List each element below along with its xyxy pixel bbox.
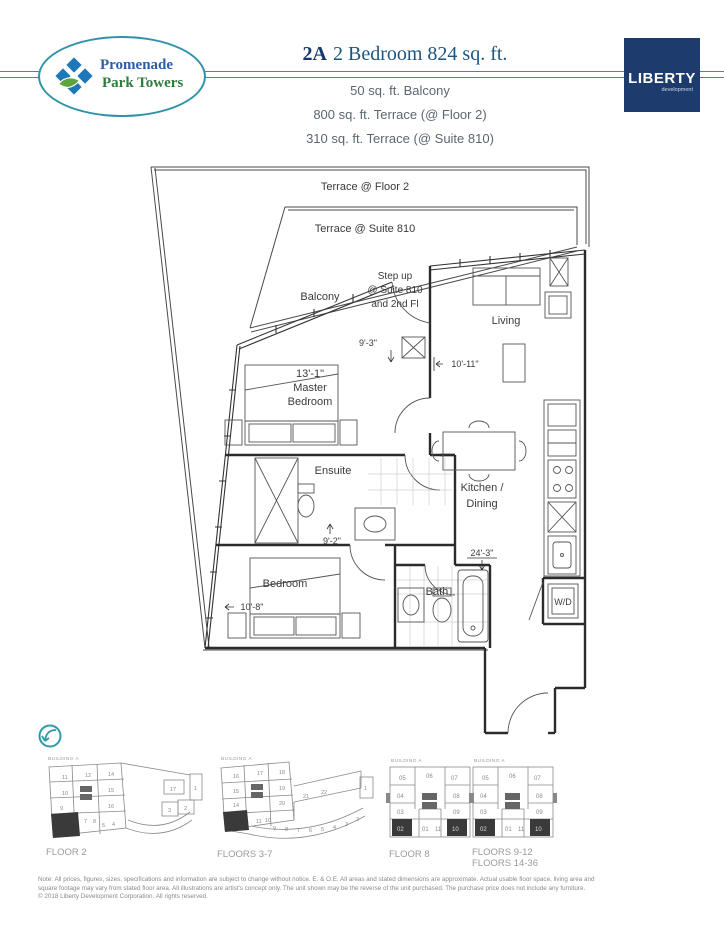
keyplan-floor2-core bbox=[80, 786, 92, 792]
svg-text:19: 19 bbox=[279, 786, 285, 792]
svg-text:04: 04 bbox=[480, 794, 487, 800]
svg-text:11: 11 bbox=[518, 827, 525, 833]
svg-text:10: 10 bbox=[62, 791, 68, 797]
label-step-up-3: and 2nd Fl bbox=[371, 299, 418, 310]
dim-9-2: 9'-2" bbox=[323, 536, 341, 546]
keyplan-floors912-balcony-left bbox=[469, 793, 473, 803]
svg-text:17: 17 bbox=[170, 787, 176, 793]
svg-text:01: 01 bbox=[505, 827, 512, 833]
label-bedroom: Bedroom bbox=[263, 578, 308, 590]
svg-text:10: 10 bbox=[452, 827, 459, 833]
living-furniture bbox=[473, 268, 571, 382]
label-wd: W/D bbox=[554, 597, 572, 607]
disclaimer-line-2: square footage may vary from stated floo… bbox=[38, 885, 693, 894]
disclaimer-line-3: © 2018 Liberty Development Corporation. … bbox=[38, 893, 693, 902]
svg-text:04: 04 bbox=[397, 794, 404, 800]
svg-text:05: 05 bbox=[482, 776, 489, 782]
logo-text-promenade: Promenade bbox=[100, 57, 173, 74]
keyplan-floor2-core2 bbox=[80, 794, 92, 800]
svg-text:7: 7 bbox=[297, 828, 300, 834]
svg-text:1: 1 bbox=[194, 786, 197, 792]
terrace-outlines bbox=[151, 167, 589, 650]
svg-text:8: 8 bbox=[285, 827, 288, 833]
label-step-up-2: @ Suite 810 bbox=[367, 285, 423, 296]
svg-text:4: 4 bbox=[112, 822, 115, 828]
label-living: Living bbox=[492, 315, 521, 327]
label-kitchen-2: Dining bbox=[466, 498, 497, 510]
keyplan-floors-3-7: BUILDING A 16 17 18 15 19 14 20 11 10 9 … bbox=[213, 750, 381, 864]
svg-text:02: 02 bbox=[397, 827, 404, 833]
keyplan-floors37-building: BUILDING A bbox=[221, 756, 252, 762]
svg-text:3: 3 bbox=[168, 808, 171, 814]
subtitle-terrace-fl2: 800 sq. ft. Terrace (@ Floor 2) bbox=[200, 107, 600, 122]
north-compass-icon bbox=[36, 722, 64, 750]
dim-10-8: 10'-8" bbox=[241, 602, 264, 612]
svg-text:1: 1 bbox=[364, 786, 367, 792]
svg-text:07: 07 bbox=[451, 776, 458, 782]
svg-text:11: 11 bbox=[256, 819, 262, 825]
label-bath: Bath bbox=[426, 586, 449, 598]
svg-text:5: 5 bbox=[102, 823, 105, 829]
door-swings bbox=[350, 282, 548, 733]
svg-text:08: 08 bbox=[453, 794, 460, 800]
unit-code: 2A bbox=[303, 43, 327, 65]
keyplan-floors37-label: FLOORS 3-7 bbox=[217, 849, 272, 860]
unit-walls bbox=[205, 250, 585, 733]
keyplan-floor-2: BUILDING A 11 12 14 10 15 9 16 7 8 5 4 1… bbox=[42, 750, 214, 862]
svg-text:2: 2 bbox=[356, 817, 359, 823]
ensuite-fixtures bbox=[255, 458, 452, 543]
page-title: 2A2 Bedroom 824 sq. ft. bbox=[220, 43, 590, 66]
subtitle-terrace-suite: 310 sq. ft. Terrace (@ Suite 810) bbox=[200, 131, 600, 146]
label-master-2: Bedroom bbox=[288, 396, 333, 408]
keyplan-floor-8: BUILDING A 05 06 07 04 08 03 09 02 01 11… bbox=[385, 753, 477, 865]
svg-text:03: 03 bbox=[480, 810, 487, 816]
keyplan-floors37-unit-numbers: 16 17 18 15 19 14 20 11 10 9 8 7 6 5 4 3… bbox=[233, 770, 367, 834]
svg-text:3: 3 bbox=[345, 822, 348, 828]
svg-text:4: 4 bbox=[333, 825, 336, 831]
keyplan-floors-9-36: BUILDING A 05 06 07 04 08 03 09 02 01 11… bbox=[468, 753, 563, 877]
svg-text:08: 08 bbox=[536, 794, 543, 800]
liberty-name: LIBERTY bbox=[624, 70, 700, 87]
keyplan-floor8-building: BUILDING A bbox=[391, 758, 422, 764]
svg-text:16: 16 bbox=[108, 804, 114, 810]
svg-text:07: 07 bbox=[534, 776, 541, 782]
label-kitchen-1: Kitchen / bbox=[461, 482, 505, 494]
keyplan-floors37-core2 bbox=[251, 792, 263, 798]
keyplan-floor8-core bbox=[422, 793, 437, 800]
svg-text:21: 21 bbox=[303, 794, 309, 800]
svg-text:22: 22 bbox=[321, 790, 327, 796]
label-terrace-suite: Terrace @ Suite 810 bbox=[315, 223, 415, 235]
svg-text:14: 14 bbox=[108, 772, 114, 778]
keyplan-floor8-label: FLOOR 8 bbox=[389, 849, 430, 860]
label-balcony: Balcony bbox=[300, 291, 340, 303]
svg-text:15: 15 bbox=[108, 788, 114, 794]
svg-text:9: 9 bbox=[60, 806, 63, 812]
kitchen-fixtures bbox=[544, 400, 580, 576]
svg-text:09: 09 bbox=[453, 810, 460, 816]
dim-24-3: 24'-3" bbox=[471, 548, 494, 558]
promenade-logo: Promenade Park Towers bbox=[38, 36, 206, 117]
label-ensuite: Ensuite bbox=[315, 465, 352, 477]
svg-text:12: 12 bbox=[85, 773, 91, 779]
svg-text:16: 16 bbox=[233, 774, 239, 780]
svg-text:02: 02 bbox=[480, 827, 487, 833]
svg-text:9: 9 bbox=[273, 826, 276, 832]
label-terrace-floor2: Terrace @ Floor 2 bbox=[321, 181, 409, 193]
svg-text:7: 7 bbox=[84, 819, 87, 825]
svg-text:05: 05 bbox=[399, 776, 406, 782]
keyplan-floors912-balcony-right bbox=[553, 793, 557, 803]
keyplan-floor2-building: BUILDING A bbox=[48, 756, 79, 762]
svg-text:14: 14 bbox=[233, 803, 239, 809]
label-step-up-1: Step up bbox=[378, 271, 413, 282]
bath-fixtures bbox=[396, 566, 488, 646]
floorplan-drawing: Terrace @ Floor 2 Terrace @ Suite 810 Ba… bbox=[140, 158, 612, 750]
dining-furniture bbox=[432, 421, 526, 481]
keyplan-floors912-core bbox=[505, 793, 520, 800]
svg-text:8: 8 bbox=[93, 819, 96, 825]
unit-description: 2 Bedroom 824 sq. ft. bbox=[333, 43, 507, 65]
keyplan-floors912-building: BUILDING A bbox=[474, 758, 505, 764]
keyplan-floors912-label1: FLOORS 9-12 bbox=[472, 847, 533, 858]
keyplan-floors912-core2 bbox=[505, 802, 520, 809]
shaft-boxes bbox=[402, 258, 568, 358]
keyplan-floor8-core2 bbox=[422, 802, 437, 809]
svg-text:11: 11 bbox=[435, 827, 442, 833]
svg-text:6: 6 bbox=[309, 828, 312, 834]
disclaimer-line-1: Note: All prices, figures, sizes, specif… bbox=[38, 876, 693, 885]
svg-text:09: 09 bbox=[536, 810, 543, 816]
svg-text:06: 06 bbox=[426, 774, 433, 780]
keyplan-floors37-highlighted-unit bbox=[223, 810, 249, 832]
keyplan-floors37-core bbox=[251, 784, 263, 790]
svg-text:10: 10 bbox=[535, 827, 542, 833]
svg-text:11: 11 bbox=[62, 775, 68, 781]
keyplan-floor8-balcony-left bbox=[386, 793, 390, 803]
keyplan-floor2-highlighted-unit bbox=[51, 812, 80, 838]
label-master-1: Master bbox=[293, 382, 327, 394]
logo-text-park-towers: Park Towers bbox=[102, 75, 183, 92]
svg-text:03: 03 bbox=[397, 810, 404, 816]
subtitle-balcony: 50 sq. ft. Balcony bbox=[200, 83, 600, 98]
svg-text:20: 20 bbox=[279, 801, 285, 807]
dim-10-11: 10'-11" bbox=[451, 359, 478, 369]
svg-text:5: 5 bbox=[321, 827, 324, 833]
svg-text:15: 15 bbox=[233, 789, 239, 795]
svg-text:10: 10 bbox=[265, 818, 271, 824]
svg-text:2: 2 bbox=[184, 806, 187, 812]
svg-text:18: 18 bbox=[279, 770, 285, 776]
svg-text:17: 17 bbox=[257, 771, 263, 777]
bedroom-bed bbox=[228, 558, 360, 638]
svg-text:01: 01 bbox=[422, 827, 429, 833]
svg-text:06: 06 bbox=[509, 774, 516, 780]
keyplan-floors912-label2: FLOORS 14-36 bbox=[472, 858, 538, 869]
liberty-sub: development bbox=[662, 87, 694, 93]
promenade-logo-mark-icon bbox=[52, 54, 96, 98]
liberty-development-logo: LIBERTY development bbox=[624, 38, 700, 112]
disclaimer: Note: All prices, figures, sizes, specif… bbox=[38, 876, 693, 902]
keyplan-floor2-label: FLOOR 2 bbox=[46, 847, 87, 858]
label-master-dim: 13'-1" bbox=[296, 368, 324, 380]
dim-9-3: 9'-3" bbox=[359, 338, 377, 348]
